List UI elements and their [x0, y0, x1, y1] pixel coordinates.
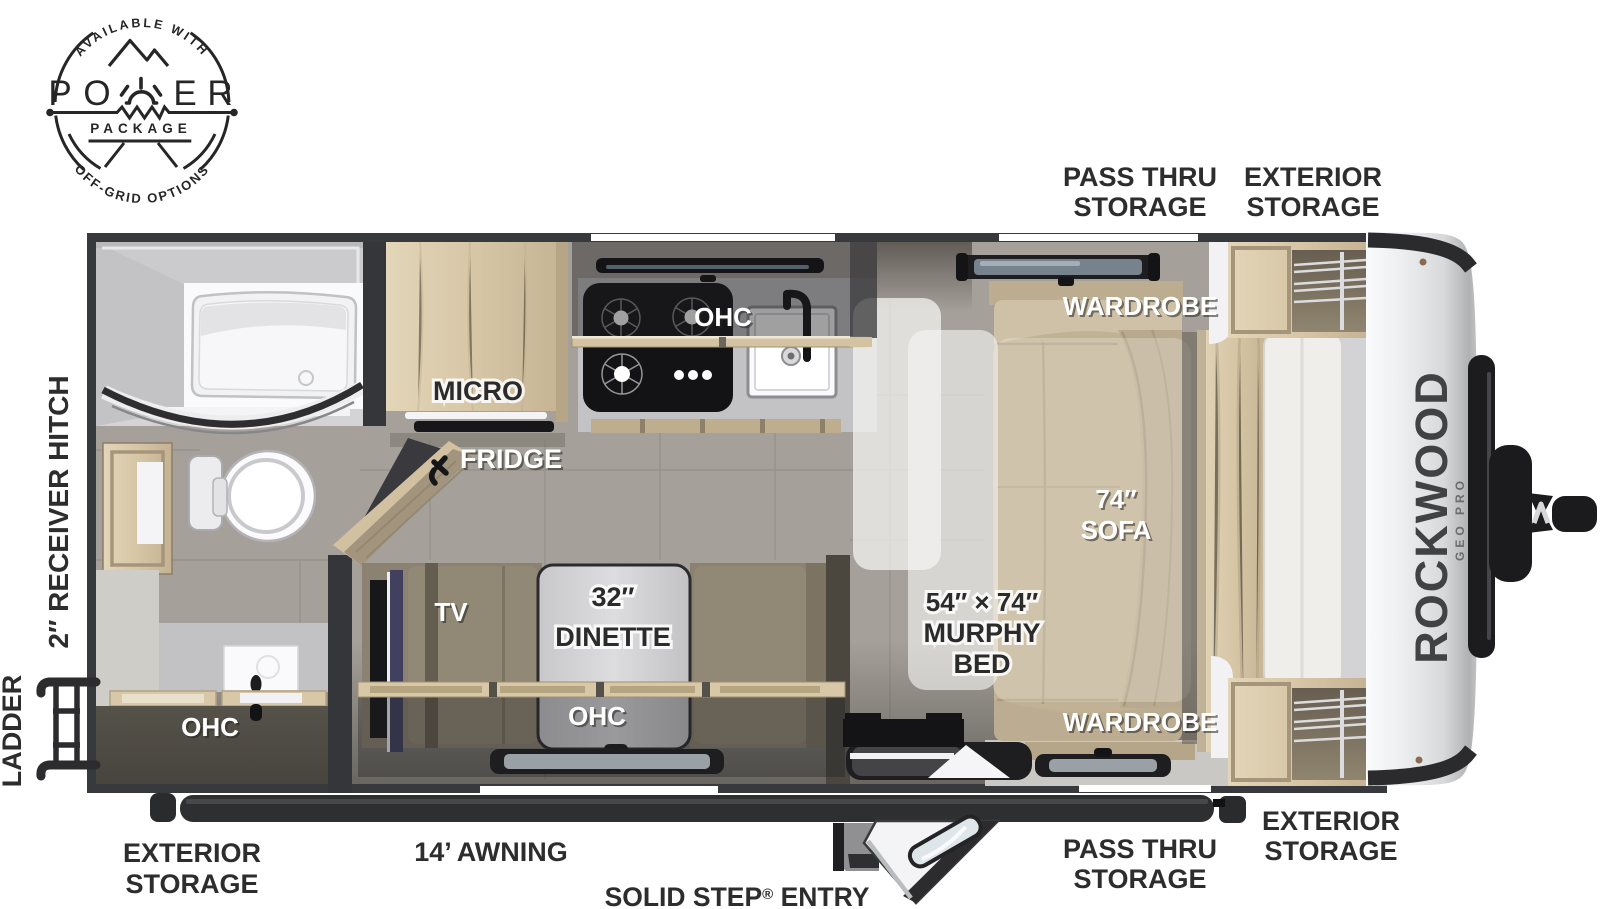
svg-text:MURPHY: MURPHY [923, 618, 1040, 648]
svg-text:EXTERIOR: EXTERIOR [123, 838, 261, 868]
svg-text:O: O [83, 74, 110, 113]
svg-text:GEO PRO: GEO PRO [1453, 477, 1467, 561]
svg-text:LADDER: LADDER [0, 675, 27, 788]
svg-text:E: E [173, 74, 196, 113]
svg-text:PACKAGE: PACKAGE [90, 121, 192, 136]
svg-text:54″ × 74″: 54″ × 74″ [926, 587, 1038, 617]
svg-text:STORAGE: STORAGE [125, 869, 258, 899]
svg-text:DINETTE: DINETTE [555, 622, 671, 652]
svg-text:STORAGE: STORAGE [1264, 836, 1397, 866]
svg-text:WARDROBE: WARDROBE [1063, 291, 1218, 321]
svg-text:74″: 74″ [1095, 484, 1136, 514]
svg-text:2″ RECEIVER HITCH: 2″ RECEIVER HITCH [43, 375, 74, 648]
svg-text:FRIDGE: FRIDGE [460, 444, 562, 474]
svg-text:OHC: OHC [694, 302, 752, 332]
svg-text:OHC: OHC [181, 712, 239, 742]
svg-text:OHC: OHC [568, 701, 626, 731]
svg-text:32″: 32″ [592, 582, 635, 612]
svg-text:P: P [48, 74, 71, 113]
svg-text:STORAGE: STORAGE [1246, 192, 1379, 222]
svg-text:EXTERIOR: EXTERIOR [1262, 806, 1400, 836]
svg-text:STORAGE: STORAGE [1073, 864, 1206, 894]
svg-text:STORAGE: STORAGE [1073, 192, 1206, 222]
svg-text:TV: TV [434, 597, 468, 627]
svg-text:SOFA: SOFA [1081, 515, 1152, 545]
svg-text:WARDROBE: WARDROBE [1063, 707, 1218, 737]
svg-text:PASS THRU: PASS THRU [1063, 162, 1217, 192]
svg-text:PASS THRU: PASS THRU [1063, 834, 1217, 864]
svg-text:EXTERIOR: EXTERIOR [1244, 162, 1382, 192]
svg-text:MICRO: MICRO [433, 376, 523, 406]
svg-text:ROCKWOOD: ROCKWOOD [1406, 370, 1457, 663]
svg-text:BED: BED [953, 649, 1010, 679]
svg-text:14’ AWNING: 14’ AWNING [414, 837, 568, 867]
svg-text:R: R [207, 74, 232, 113]
svg-text:SOLID STEP® ENTRY: SOLID STEP® ENTRY [605, 882, 870, 909]
